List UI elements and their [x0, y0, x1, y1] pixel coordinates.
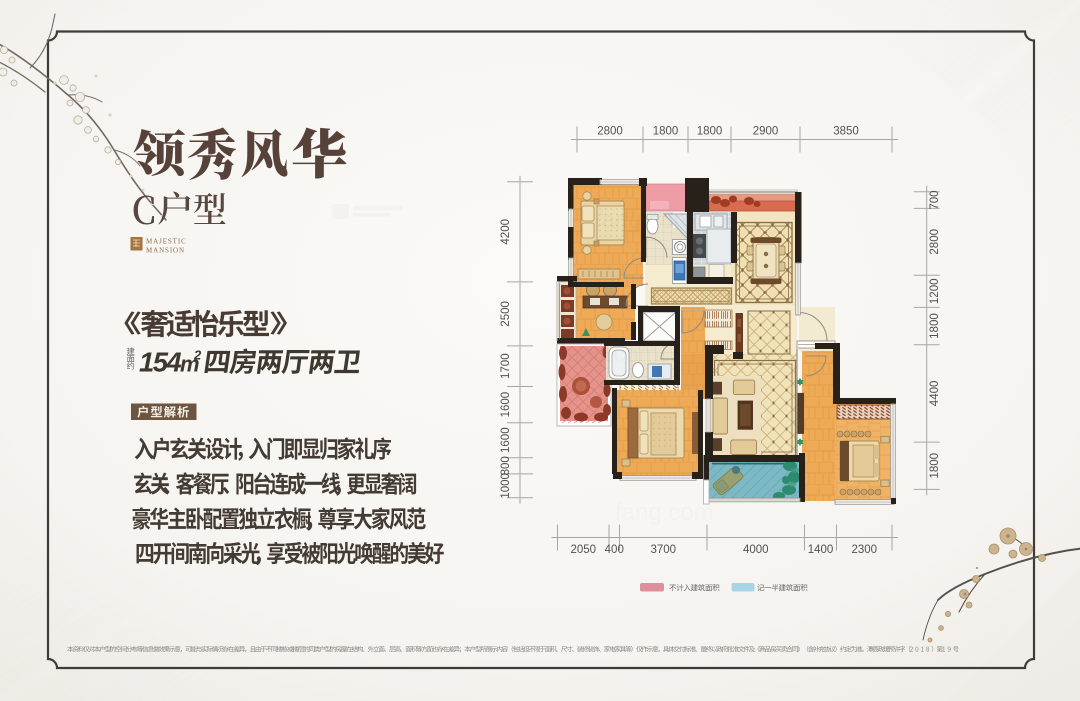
svg-text:700: 700	[929, 190, 941, 209]
svg-text:1600: 1600	[500, 427, 512, 453]
svg-text:3850: 3850	[833, 126, 859, 138]
svg-text:fang.com: fang.com	[595, 207, 694, 234]
svg-text:4000: 4000	[743, 544, 769, 556]
svg-text:2050: 2050	[570, 544, 596, 556]
svg-text:MANSION: MANSION	[146, 247, 185, 255]
svg-text:2300: 2300	[851, 544, 877, 556]
svg-text:2800: 2800	[597, 126, 623, 138]
svg-text:400: 400	[605, 544, 624, 556]
svg-text:1600: 1600	[500, 392, 512, 418]
svg-text:1800: 1800	[929, 453, 941, 479]
svg-text:1000: 1000	[500, 473, 512, 499]
svg-text:2800: 2800	[929, 229, 941, 255]
svg-text:1200: 1200	[929, 279, 941, 305]
svg-text:1800: 1800	[697, 126, 723, 138]
svg-text:4200: 4200	[500, 219, 512, 245]
svg-text:2500: 2500	[500, 301, 512, 327]
svg-text:1400: 1400	[808, 544, 834, 556]
svg-text:fang.com: fang.com	[560, 341, 659, 368]
svg-text:1800: 1800	[929, 313, 941, 339]
svg-text:4400: 4400	[929, 381, 941, 407]
svg-text:fang.com: fang.com	[615, 499, 714, 526]
svg-text:MAJESTIC: MAJESTIC	[146, 238, 187, 246]
svg-text:3700: 3700	[650, 544, 676, 556]
svg-text:800: 800	[500, 456, 512, 475]
svg-text:1700: 1700	[500, 353, 512, 379]
svg-text:1800: 1800	[653, 126, 679, 138]
svg-text:2900: 2900	[753, 126, 779, 138]
svg-text:2: 2	[193, 348, 202, 363]
svg-text:154: 154	[139, 347, 181, 378]
